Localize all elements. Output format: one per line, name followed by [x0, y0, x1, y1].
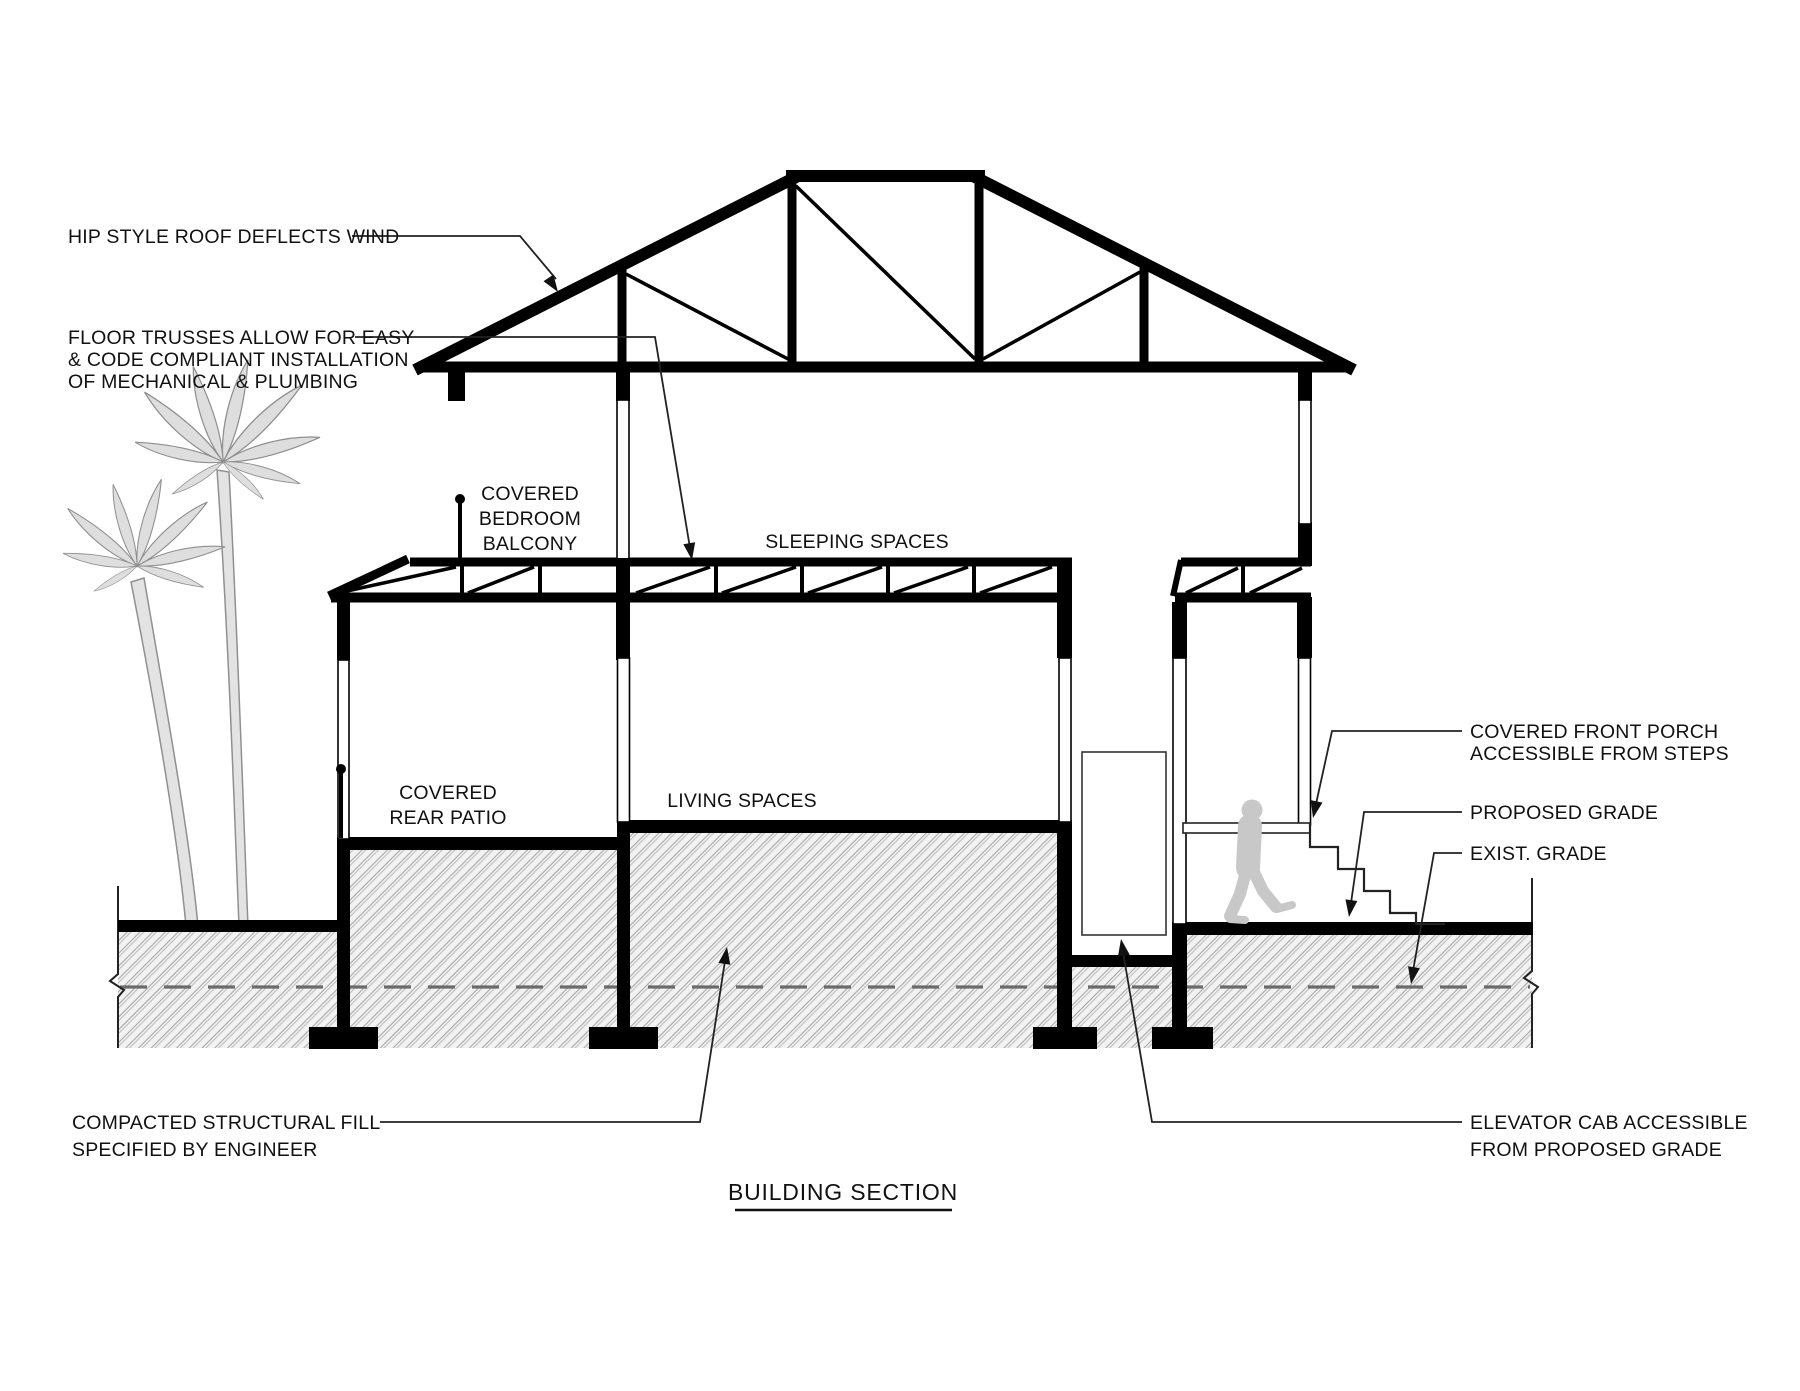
label-balcony-2: BEDROOM: [479, 508, 581, 530]
porch-truss-edge: [1173, 560, 1181, 596]
label-sleeping-spaces: SLEEPING SPACES: [765, 531, 949, 553]
elevator-cab: [1082, 752, 1166, 935]
hip-roof-truss: [415, 176, 1354, 370]
wall-hollow: [1299, 400, 1311, 524]
label-balcony-1: COVERED: [481, 483, 579, 505]
structural-fill-hatch: [630, 833, 1057, 1048]
roof-truss-web: [983, 272, 1140, 359]
leader-porch: [1316, 731, 1462, 804]
floor-truss-web: [808, 567, 882, 593]
floor-truss-web: [636, 567, 710, 593]
label-porch-1: COVERED FRONT PORCH: [1470, 721, 1718, 743]
living-floor-slab: [617, 820, 1072, 833]
wall-stub: [1298, 372, 1312, 401]
grade-line-right: [1177, 922, 1533, 935]
footing: [1152, 1027, 1213, 1049]
label-living-spaces: LIVING SPACES: [667, 790, 817, 812]
floor-truss-web: [980, 567, 1052, 593]
palm-trunk: [217, 470, 248, 926]
floor-truss-web: [468, 567, 534, 593]
labels: HIP STYLE ROOF DEFLECTS WIND FLOOR TRUSS…: [68, 226, 1748, 1210]
structural-fill-hatch: [1177, 935, 1532, 1048]
footing: [309, 1027, 378, 1049]
wall-black: [616, 558, 630, 660]
label-exist-grade: EXIST. GRADE: [1470, 843, 1607, 865]
person-figure: [1230, 800, 1292, 921]
label-floor-trusses-2: & CODE COMPLIANT INSTALLATION: [68, 349, 409, 371]
structural-fill-hatch: [118, 932, 337, 1048]
label-elevator-2: FROM PROPOSED GRADE: [1470, 1139, 1722, 1161]
label-balcony-3: BALCONY: [483, 533, 578, 555]
ground-fill: [110, 833, 1538, 1048]
label-porch-2: ACCESSIBLE FROM STEPS: [1470, 743, 1729, 765]
wall-hollow: [617, 400, 629, 560]
wall-stub: [448, 372, 465, 401]
balcony-railing-finial: [455, 494, 465, 504]
label-floor-trusses-1: FLOOR TRUSSES ALLOW FOR EASY: [68, 327, 415, 349]
floor-truss-web: [722, 567, 796, 593]
floor-truss-web: [894, 567, 968, 593]
porch-truss-band: [1173, 560, 1311, 598]
wall-black: [1172, 602, 1187, 658]
wall-stub: [1298, 522, 1312, 566]
wall-black: [337, 598, 350, 660]
person-back-foot: [1230, 919, 1245, 920]
structural-fill-hatch: [350, 850, 617, 1048]
wall-stub: [616, 372, 630, 401]
person-front-leg: [1252, 868, 1276, 907]
floor-truss-band: [329, 559, 1072, 598]
footing: [1033, 1027, 1097, 1049]
porch-and-steps: [1183, 823, 1445, 924]
wall-hollow: [1299, 658, 1311, 825]
patio-floor-slab: [337, 837, 622, 850]
wall-hollow: [1059, 658, 1071, 822]
footing: [589, 1027, 658, 1049]
label-floor-trusses-3: OF MECHANICAL & PLUMBING: [68, 371, 358, 393]
person-front-foot: [1277, 905, 1292, 909]
foundation-wall: [1172, 922, 1187, 1029]
label-hip-roof: HIP STYLE ROOF DEFLECTS WIND: [68, 226, 399, 248]
roof-truss-web: [626, 274, 788, 359]
foundation-wall: [337, 848, 350, 1029]
palm-fronds: [62, 478, 226, 594]
foundation-wall: [1057, 820, 1072, 1029]
wall-hollow: [1173, 658, 1186, 924]
label-patio-1: COVERED: [399, 782, 497, 804]
porch-truss-web: [1250, 568, 1302, 593]
label-structural-fill-2: SPECIFIED BY ENGINEER: [72, 1139, 317, 1161]
grade-line-left: [118, 920, 338, 932]
section-drawing: HIP STYLE ROOF DEFLECTS WIND FLOOR TRUSS…: [0, 0, 1800, 1391]
label-patio-2: REAR PATIO: [389, 807, 506, 829]
leader-proposed-grade: [1351, 812, 1462, 903]
roof-right-top-chord: [973, 176, 1354, 370]
label-proposed-grade: PROPOSED GRADE: [1470, 802, 1658, 824]
balcony-cantilever-edge: [329, 559, 408, 596]
wall-black: [1057, 558, 1072, 658]
palm-trunk: [131, 578, 198, 926]
roof-left-top-chord: [415, 176, 798, 370]
wall-hollow: [618, 658, 630, 822]
drawing-title: BUILDING SECTION: [728, 1179, 958, 1205]
wall-black: [1297, 597, 1312, 658]
label-elevator-1: ELEVATOR CAB ACCESSIBLE: [1470, 1112, 1748, 1134]
label-structural-fill-1: COMPACTED STRUCTURAL FILL: [72, 1112, 380, 1134]
palm-trees: [62, 358, 321, 926]
building-section-sheet: HIP STYLE ROOF DEFLECTS WIND FLOOR TRUSS…: [0, 0, 1800, 1391]
patio-railing-finial: [336, 764, 346, 774]
porch-truss-web: [1186, 568, 1238, 593]
foundation-wall: [617, 831, 630, 1029]
roof-truss-web: [796, 186, 975, 359]
